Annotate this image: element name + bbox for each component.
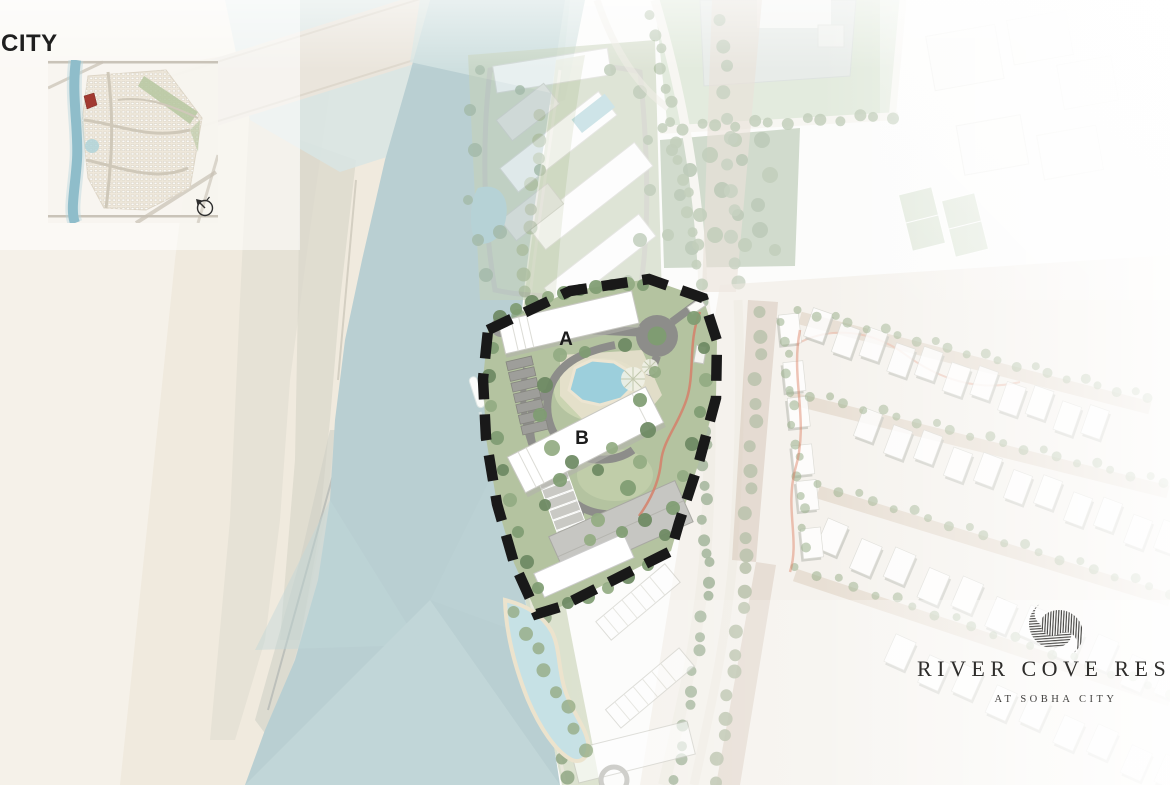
project-logo: RIVER COVE RESIDENCE AT SOBHA CITY [902, 590, 1170, 730]
logo-subtitle: AT SOBHA CITY [902, 694, 1170, 705]
river-cove-logo-icon [1028, 592, 1082, 666]
building-a-label: A [559, 329, 573, 350]
inset-river [73, 60, 77, 223]
north-neighbour-cluster [463, 40, 662, 310]
inset-pond [85, 139, 99, 153]
inset-map-svg [48, 60, 218, 223]
location-inset-map[interactable] [48, 60, 218, 223]
page-title: CITY [1, 30, 58, 58]
logo-title: RIVER COVE RESIDENCE [917, 656, 1170, 682]
site-plan-canvas: A B CITY [0, 0, 1170, 785]
building-b-label: B [575, 428, 589, 449]
